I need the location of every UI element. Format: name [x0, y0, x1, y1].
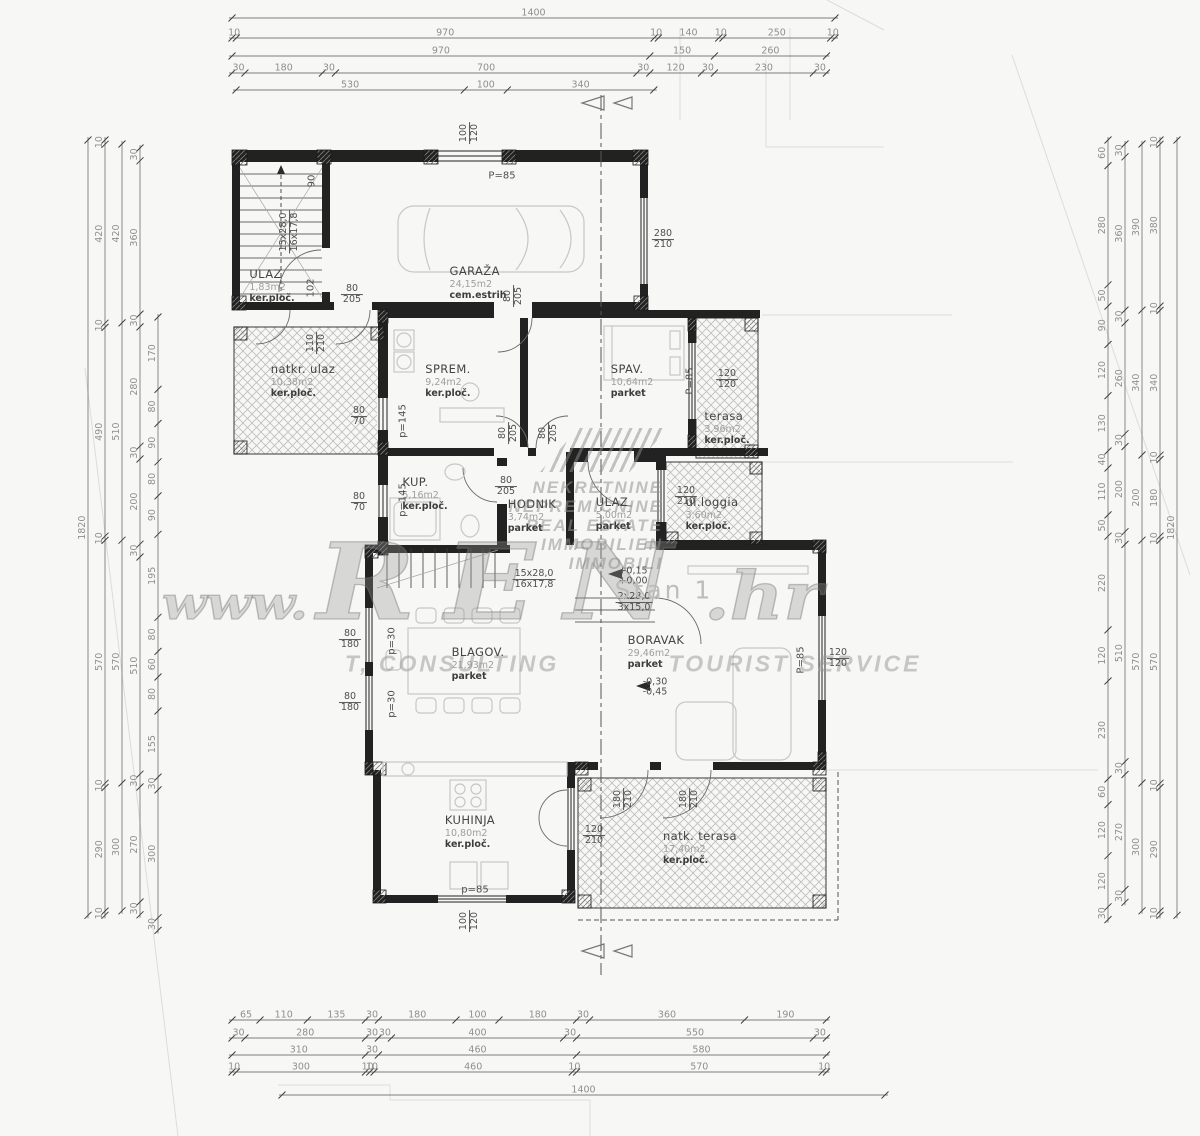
dim-label: 30: [1114, 532, 1125, 544]
dim-label: 30: [379, 1028, 391, 1039]
dim-label: 230: [755, 63, 773, 74]
dim-label: 10: [1149, 779, 1160, 791]
dim-label: 260: [761, 46, 779, 57]
dim-label: 120: [1097, 821, 1108, 839]
dim-label: 570: [1149, 653, 1160, 671]
dim-chain: 170809080901958060801553030030: [147, 314, 162, 934]
dim-chain: 103801034010180105701029010: [1149, 136, 1164, 919]
dim-label: 10: [94, 136, 105, 148]
dim-label: 170: [147, 344, 158, 362]
dim-label: 60: [1097, 147, 1108, 159]
dim-label: 30: [1097, 907, 1108, 919]
dim-label: 30: [129, 545, 140, 557]
dim-label: 135: [327, 1010, 345, 1021]
dim-label: 10: [1149, 451, 1160, 463]
dim-label: 30: [147, 918, 158, 930]
dim-label: 30: [564, 1028, 576, 1039]
dim-label: 380: [1149, 216, 1160, 234]
dim-label: 110: [1097, 482, 1108, 500]
dim-label: 570: [1131, 653, 1142, 671]
floor-plan-page: 1400109701014010250109701502603018030700…: [0, 0, 1200, 1136]
dim-label: 30: [814, 63, 826, 74]
dim-label: 390: [1131, 218, 1142, 236]
dim-label: 340: [1149, 374, 1160, 392]
dim-label: 10: [94, 319, 105, 331]
dim-label: 570: [94, 653, 105, 671]
dim-label: 400: [468, 1028, 486, 1039]
dim-chain: 3028030304003055030: [229, 1028, 830, 1042]
dim-label: 30: [1114, 144, 1125, 156]
dim-chain: 390340200570300: [1131, 141, 1146, 915]
dim-label: 30: [1114, 434, 1125, 446]
dim-chain: 1820: [77, 137, 92, 919]
dim-label: 280: [296, 1028, 314, 1039]
dim-label: 1400: [521, 8, 545, 19]
dim-label: 80: [147, 628, 158, 640]
dim-label: 10: [1149, 302, 1160, 314]
dim-label: 10: [1149, 907, 1160, 919]
dim-label: 10: [94, 779, 105, 791]
dim-label: 120: [1097, 361, 1108, 379]
dim-label: 270: [1114, 823, 1125, 841]
dim-chain: 3018030700301203023030: [229, 63, 830, 77]
dim-label: 40: [1097, 453, 1108, 465]
dim-label: 300: [147, 845, 158, 863]
dim-label: 30: [814, 1028, 826, 1039]
dim-label: 150: [673, 46, 691, 57]
dim-label: 1400: [571, 1085, 595, 1096]
dim-label: 10: [827, 28, 839, 39]
dim-label: 130: [1097, 414, 1108, 432]
dim-label: 30: [147, 777, 158, 789]
dim-label: 30: [1114, 310, 1125, 322]
dim-label: 10: [366, 1062, 378, 1073]
dim-label: 195: [147, 567, 158, 585]
dim-label: 10: [818, 1062, 830, 1073]
dim-label: 230: [1097, 721, 1108, 739]
dim-label: 270: [129, 835, 140, 853]
dim-label: 30: [129, 775, 140, 787]
dim-label: 300: [1131, 838, 1142, 856]
dim-chain: 970150260: [229, 46, 830, 60]
dim-label: 290: [1149, 840, 1160, 858]
dim-label: 300: [292, 1062, 310, 1073]
dim-label: 100: [468, 1010, 486, 1021]
dim-label: 310: [290, 1045, 308, 1056]
dim-chain: 303603026030200305103027030: [1114, 141, 1129, 906]
dim-chain: 6028050901201304011050220120230601201203…: [1097, 137, 1112, 924]
dim-label: 530: [341, 80, 359, 91]
dim-label: 50: [1097, 289, 1108, 301]
dim-chain: 1820: [1166, 137, 1181, 919]
dim-label: 250: [768, 28, 786, 39]
dim-label: 510: [1114, 644, 1125, 662]
dim-label: 1820: [77, 516, 88, 540]
dim-label: 200: [129, 493, 140, 511]
dim-chain: 1400: [279, 1085, 889, 1099]
dim-label: 80: [147, 473, 158, 485]
dim-label: 60: [147, 658, 158, 670]
dim-label: 460: [464, 1062, 482, 1073]
dim-label: 220: [1097, 574, 1108, 592]
dim-label: 360: [129, 228, 140, 246]
dim-label: 10: [715, 28, 727, 39]
dim-label: 700: [477, 63, 495, 74]
dim-label: 10: [650, 28, 662, 39]
dim-label: 360: [658, 1010, 676, 1021]
dimension-chains: 1400109701014010250109701502603018030700…: [0, 0, 1200, 1136]
dim-label: 30: [366, 1010, 378, 1021]
dim-label: 420: [94, 225, 105, 243]
dim-label: 90: [147, 437, 158, 449]
dim-label: 460: [468, 1045, 486, 1056]
dim-chain: 1030010104601057010: [228, 1062, 830, 1076]
dim-label: 180: [529, 1010, 547, 1021]
dim-label: 510: [111, 422, 122, 440]
dim-label: 180: [275, 63, 293, 74]
dim-label: 570: [111, 653, 122, 671]
dim-label: 110: [275, 1010, 293, 1021]
dim-chain: 651101353018010018030360190: [229, 1010, 830, 1024]
dim-label: 80: [147, 688, 158, 700]
dim-label: 120: [1097, 872, 1108, 890]
dim-label: 60: [1097, 786, 1108, 798]
dim-label: 10: [1149, 532, 1160, 544]
dim-chain: 530100340: [233, 80, 658, 94]
dim-label: 280: [1097, 216, 1108, 234]
dim-label: 340: [1131, 374, 1142, 392]
dim-label: 30: [323, 63, 335, 74]
dim-label: 30: [129, 148, 140, 160]
dim-chain: 1400: [229, 8, 839, 22]
dim-chain: 31030460580: [229, 1045, 830, 1059]
dim-label: 420: [111, 224, 122, 242]
dim-label: 30: [232, 63, 244, 74]
dim-label: 510: [129, 657, 140, 675]
dim-label: 580: [692, 1045, 710, 1056]
dim-label: 100: [477, 80, 495, 91]
dim-label: 190: [776, 1010, 794, 1021]
dim-label: 30: [366, 1028, 378, 1039]
dim-label: 140: [679, 28, 697, 39]
dim-label: 30: [129, 447, 140, 459]
dim-label: 90: [147, 509, 158, 521]
dim-label: 260: [1114, 369, 1125, 387]
dim-chain: 303603028030200305103027030: [129, 145, 144, 919]
dim-label: 10: [1149, 136, 1160, 148]
dim-label: 290: [94, 840, 105, 858]
dim-chain: 420510570300: [111, 141, 126, 915]
dim-label: 550: [686, 1028, 704, 1039]
dim-label: 30: [577, 1010, 589, 1021]
dim-label: 120: [667, 63, 685, 74]
dim-label: 90: [1097, 319, 1108, 331]
dim-label: 180: [1149, 489, 1160, 507]
dim-label: 970: [436, 28, 454, 39]
dim-label: 30: [232, 1028, 244, 1039]
dim-label: 570: [690, 1062, 708, 1073]
dim-label: 180: [408, 1010, 426, 1021]
dim-label: 65: [240, 1010, 252, 1021]
dim-label: 30: [702, 63, 714, 74]
dim-label: 30: [366, 1045, 378, 1056]
dim-label: 970: [432, 46, 450, 57]
dim-label: 10: [568, 1062, 580, 1073]
dim-label: 50: [1097, 519, 1108, 531]
dim-label: 10: [228, 28, 240, 39]
dim-label: 280: [129, 378, 140, 396]
dim-label: 300: [111, 838, 122, 856]
dim-label: 120: [1097, 646, 1108, 664]
dim-label: 155: [147, 735, 158, 753]
dim-label: 340: [572, 80, 590, 91]
dim-label: 10: [228, 1062, 240, 1073]
dim-label: 1820: [1166, 516, 1177, 540]
dim-label: 30: [1114, 890, 1125, 902]
dim-label: 200: [1131, 489, 1142, 507]
dim-chain: 1042010490105701029010: [94, 136, 109, 919]
dim-label: 200: [1114, 480, 1125, 498]
dim-chain: 10970101401025010: [228, 28, 839, 42]
dim-label: 10: [94, 907, 105, 919]
dim-label: 490: [94, 423, 105, 441]
dim-label: 30: [1114, 762, 1125, 774]
dim-label: 30: [129, 902, 140, 914]
dim-label: 30: [637, 63, 649, 74]
dim-label: 30: [129, 314, 140, 326]
dim-label: 10: [94, 532, 105, 544]
dim-label: 80: [147, 400, 158, 412]
dim-label: 360: [1114, 224, 1125, 242]
